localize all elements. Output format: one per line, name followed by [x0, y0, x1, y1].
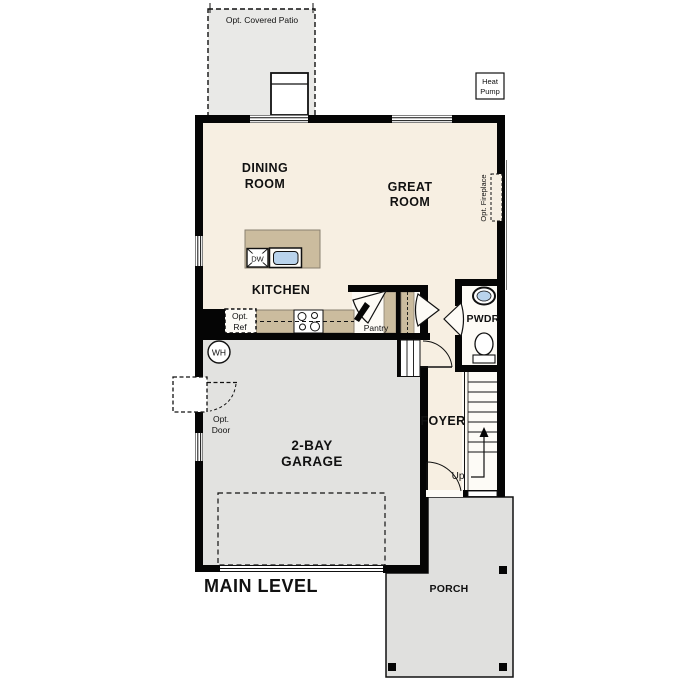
- garage-label-2: GARAGE: [281, 454, 343, 469]
- heat-pump-label-2: Pump: [480, 87, 500, 96]
- kitchen-label: KITCHEN: [252, 283, 310, 297]
- window: [392, 116, 452, 123]
- opt-door-label-1: Opt.: [213, 414, 229, 424]
- floor-plan-page: Opt. Covered Patio Heat Pump PORCH: [0, 0, 687, 687]
- dining-room-label-2: ROOM: [245, 177, 286, 191]
- foyer-label: FOYER: [420, 414, 465, 428]
- kitchen-counter: Opt. Ref: [225, 309, 354, 333]
- pwdr-label: PWDR: [467, 313, 500, 325]
- opt-refrigerator: Opt. Ref: [225, 309, 256, 333]
- opt-door-label-2: Door: [212, 425, 231, 435]
- porch-label: PORCH: [430, 583, 469, 595]
- powder-sink: [473, 288, 495, 305]
- opt-fireplace-label: Opt. Fireplace: [479, 174, 488, 221]
- porch-post: [388, 663, 396, 671]
- stairs-up-label: Up: [452, 471, 465, 482]
- porch-post: [499, 566, 507, 574]
- dishwasher-label: DW: [251, 255, 264, 264]
- opt-ref-label-1: Opt.: [232, 311, 248, 321]
- great-room-label-1: GREAT: [388, 180, 433, 194]
- covered-patio-label: Opt. Covered Patio: [226, 15, 299, 25]
- heat-pump-label-1: Heat: [482, 77, 499, 86]
- dining-room-label-1: DINING: [242, 161, 288, 175]
- dishwasher: DW: [247, 249, 268, 268]
- window: [196, 433, 203, 461]
- water-heater-label: WH: [212, 348, 226, 358]
- garage-label-1: 2-BAY: [291, 438, 332, 453]
- kitchen-island: DW: [245, 230, 320, 268]
- great-room-label-2: ROOM: [390, 195, 431, 209]
- main-level-title: MAIN LEVEL: [204, 576, 318, 596]
- toilet: [473, 333, 495, 363]
- opt-ref-label-2: Ref: [233, 322, 247, 332]
- front-step: [468, 491, 497, 497]
- chimney: [271, 73, 308, 115]
- coat-closet: [401, 340, 421, 377]
- garage-door: [220, 565, 383, 572]
- pantry-label: Pantry: [364, 323, 389, 333]
- window: [196, 236, 203, 266]
- covered-patio: Opt. Covered Patio: [208, 3, 315, 116]
- heat-pump: Heat Pump: [476, 73, 504, 99]
- island-sink: [270, 248, 302, 268]
- garage-floor: [203, 340, 420, 566]
- floor-plan-drawing: Opt. Covered Patio Heat Pump PORCH: [0, 0, 687, 687]
- water-heater: WH: [208, 341, 230, 363]
- window: [250, 116, 308, 123]
- porch-post: [499, 663, 507, 671]
